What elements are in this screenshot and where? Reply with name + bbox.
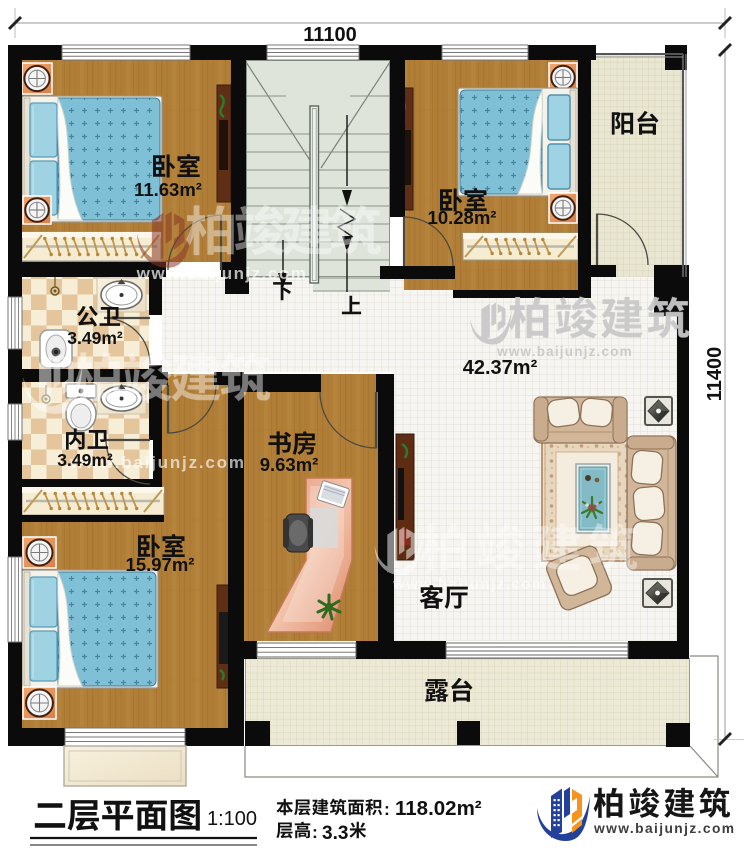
- svg-text:11100: 11100: [303, 24, 356, 46]
- svg-text:11400: 11400: [704, 347, 726, 402]
- svg-text:www.baijunjz.com: www.baijunjz.com: [593, 821, 735, 836]
- svg-text:www.baijunjz.com: www.baijunjz.com: [136, 264, 308, 283]
- svg-text:1:100: 1:100: [207, 808, 257, 830]
- svg-text:3.49m²: 3.49m²: [57, 450, 113, 470]
- svg-text:11.63m²: 11.63m²: [134, 179, 202, 200]
- svg-text:118.02m²: 118.02m²: [395, 797, 482, 820]
- svg-text:10.28m²: 10.28m²: [428, 207, 497, 228]
- svg-text:3.49m²: 3.49m²: [67, 328, 123, 348]
- svg-text:15.97m²: 15.97m²: [126, 554, 195, 575]
- svg-text:3.3: 3.3: [322, 823, 348, 844]
- svg-text::: :: [384, 799, 390, 819]
- svg-text:42.37m²: 42.37m²: [463, 357, 538, 379]
- svg-text::: :: [312, 822, 318, 842]
- svg-text:9.63m²: 9.63m²: [260, 454, 319, 475]
- svg-text:www.baijunjz.com: www.baijunjz.com: [392, 576, 546, 593]
